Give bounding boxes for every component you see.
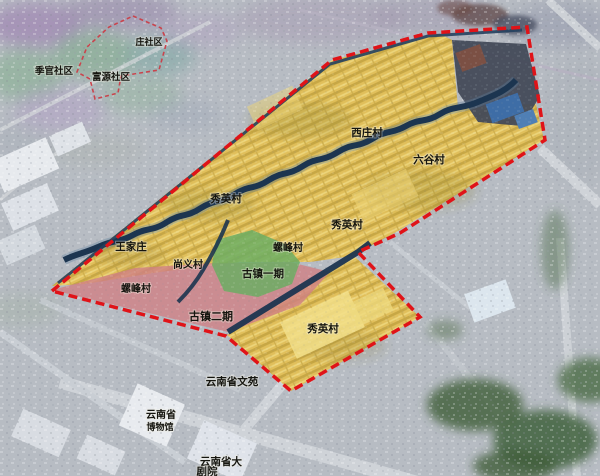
label-fuyuan-community: 富源社区 xyxy=(92,71,131,83)
label-xizhuang-village: 西庄村 xyxy=(351,126,383,139)
zone-speckle xyxy=(0,0,600,476)
label-yunnan-museum-line2: 博物馆 xyxy=(146,421,173,433)
label-wangjiazhuang: 王家庄 xyxy=(115,240,147,253)
label-xiuying-village-1: 秀英村 xyxy=(209,192,242,205)
planning-zones xyxy=(0,0,600,476)
planning-map: 庄社区 季官社区 富源社区 西庄村 六谷村 秀英村 秀英村 螺峰村 王家庄 尚义… xyxy=(0,0,600,476)
label-jiguan-community: 季官社区 xyxy=(34,65,74,77)
label-guzhen-phase-2: 古镇二期 xyxy=(189,309,233,323)
planning-map-stage: 庄社区 季官社区 富源社区 西庄村 六谷村 秀英村 秀英村 螺峰村 王家庄 尚义… xyxy=(0,0,600,476)
label-yunnan-theater-line2: 剧院 xyxy=(197,465,218,476)
label-zhuang-community: 庄社区 xyxy=(135,36,162,48)
label-luofeng-village-1: 螺峰村 xyxy=(273,241,303,254)
label-yunnan-museum-line1: 云南省 xyxy=(146,408,176,421)
label-liugu-village: 六谷村 xyxy=(413,153,445,166)
label-xiuying-village-2: 秀英村 xyxy=(330,218,363,231)
label-guzhen-phase-1: 古镇一期 xyxy=(242,267,284,280)
label-shangyi-village: 尚义村 xyxy=(173,258,203,271)
label-xiuying-village-3: 秀英村 xyxy=(306,322,339,335)
label-yunnan-wenyuan: 云南省文苑 xyxy=(206,375,259,388)
label-luofeng-village-2: 螺峰村 xyxy=(121,282,151,295)
